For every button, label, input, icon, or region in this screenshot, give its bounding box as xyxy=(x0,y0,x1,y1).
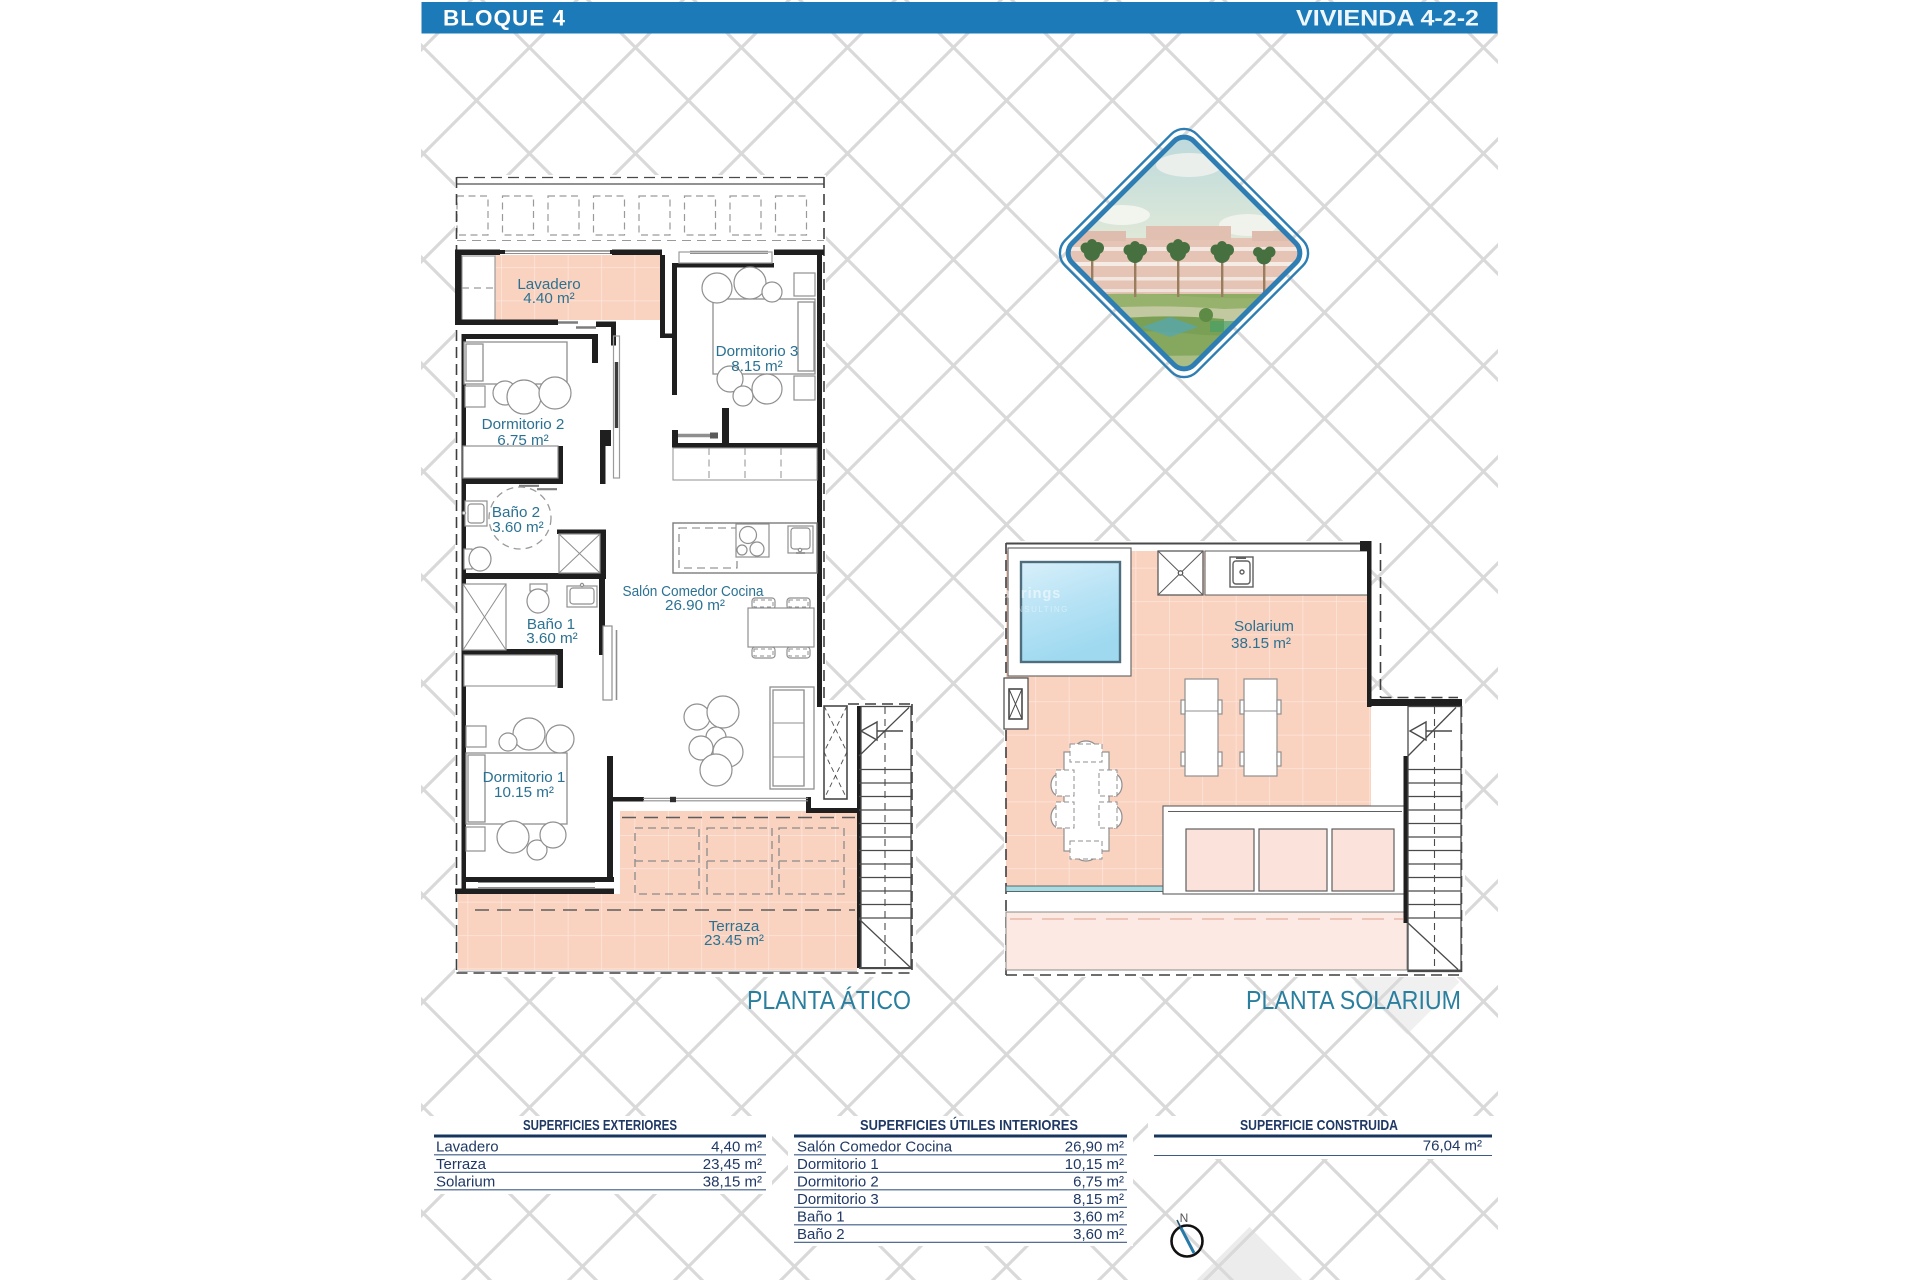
svg-text:Dormitorio 2: Dormitorio 2 xyxy=(482,416,565,433)
svg-text:26.90 m²: 26.90 m² xyxy=(665,597,725,614)
svg-text:Baño 1: Baño 1 xyxy=(797,1209,845,1226)
svg-text:4,40 m²: 4,40 m² xyxy=(711,1139,762,1156)
svg-text:Solarium: Solarium xyxy=(1234,618,1294,635)
svg-text:4.40 m²: 4.40 m² xyxy=(523,290,575,307)
svg-text:PLANTA SOLARIUM: PLANTA SOLARIUM xyxy=(1246,985,1461,1015)
svg-text:8,15 m²: 8,15 m² xyxy=(1073,1191,1124,1208)
svg-text:VIVIENDA 4-2-2: VIVIENDA 4-2-2 xyxy=(1296,6,1479,31)
svg-text:76,04 m²: 76,04 m² xyxy=(1423,1138,1482,1155)
svg-text:3.60 m²: 3.60 m² xyxy=(492,519,544,536)
svg-text:Dormitorio 3: Dormitorio 3 xyxy=(797,1191,879,1208)
svg-text:abrings: abrings xyxy=(1002,586,1061,602)
svg-text:SUPERFICIES EXTERIORES: SUPERFICIES EXTERIORES xyxy=(523,1117,677,1134)
svg-text:26,90 m²: 26,90 m² xyxy=(1065,1139,1124,1156)
svg-text:SUPERFICIES ÚTILES INTERIORES: SUPERFICIES ÚTILES INTERIORES xyxy=(860,1116,1078,1134)
svg-text:3,60 m²: 3,60 m² xyxy=(1073,1226,1124,1243)
svg-text:BLOQUE 4: BLOQUE 4 xyxy=(443,6,566,31)
svg-text:PLANTA ÁTICO: PLANTA ÁTICO xyxy=(747,985,911,1015)
svg-text:23,45 m²: 23,45 m² xyxy=(703,1156,762,1173)
svg-text:23.45 m²: 23.45 m² xyxy=(704,932,764,949)
svg-text:SUPERFICIE CONSTRUIDA: SUPERFICIE CONSTRUIDA xyxy=(1240,1117,1398,1134)
svg-text:Salón Comedor Cocina: Salón Comedor Cocina xyxy=(797,1139,953,1156)
svg-text:Dormitorio 2: Dormitorio 2 xyxy=(797,1174,879,1191)
svg-text:6,75 m²: 6,75 m² xyxy=(1073,1174,1124,1191)
svg-text:3.60 m²: 3.60 m² xyxy=(526,630,578,647)
svg-text:Dormitorio 1: Dormitorio 1 xyxy=(797,1156,879,1173)
svg-text:Baño 2: Baño 2 xyxy=(797,1226,845,1243)
svg-text:Solarium: Solarium xyxy=(436,1174,495,1191)
svg-text:3,60 m²: 3,60 m² xyxy=(1073,1209,1124,1226)
svg-text:38.15 m²: 38.15 m² xyxy=(1231,635,1291,652)
svg-text:Lavadero: Lavadero xyxy=(436,1139,499,1156)
svg-text:8.15 m²: 8.15 m² xyxy=(731,358,783,375)
svg-text:10,15 m²: 10,15 m² xyxy=(1065,1156,1124,1173)
svg-text:Terraza: Terraza xyxy=(436,1156,487,1173)
svg-text:10.15 m²: 10.15 m² xyxy=(494,784,554,801)
svg-text:CONSULTING: CONSULTING xyxy=(1002,605,1069,614)
svg-text:6.75 m²: 6.75 m² xyxy=(497,432,549,449)
svg-text:38,15 m²: 38,15 m² xyxy=(703,1174,762,1191)
svg-text:N: N xyxy=(1180,1211,1189,1225)
